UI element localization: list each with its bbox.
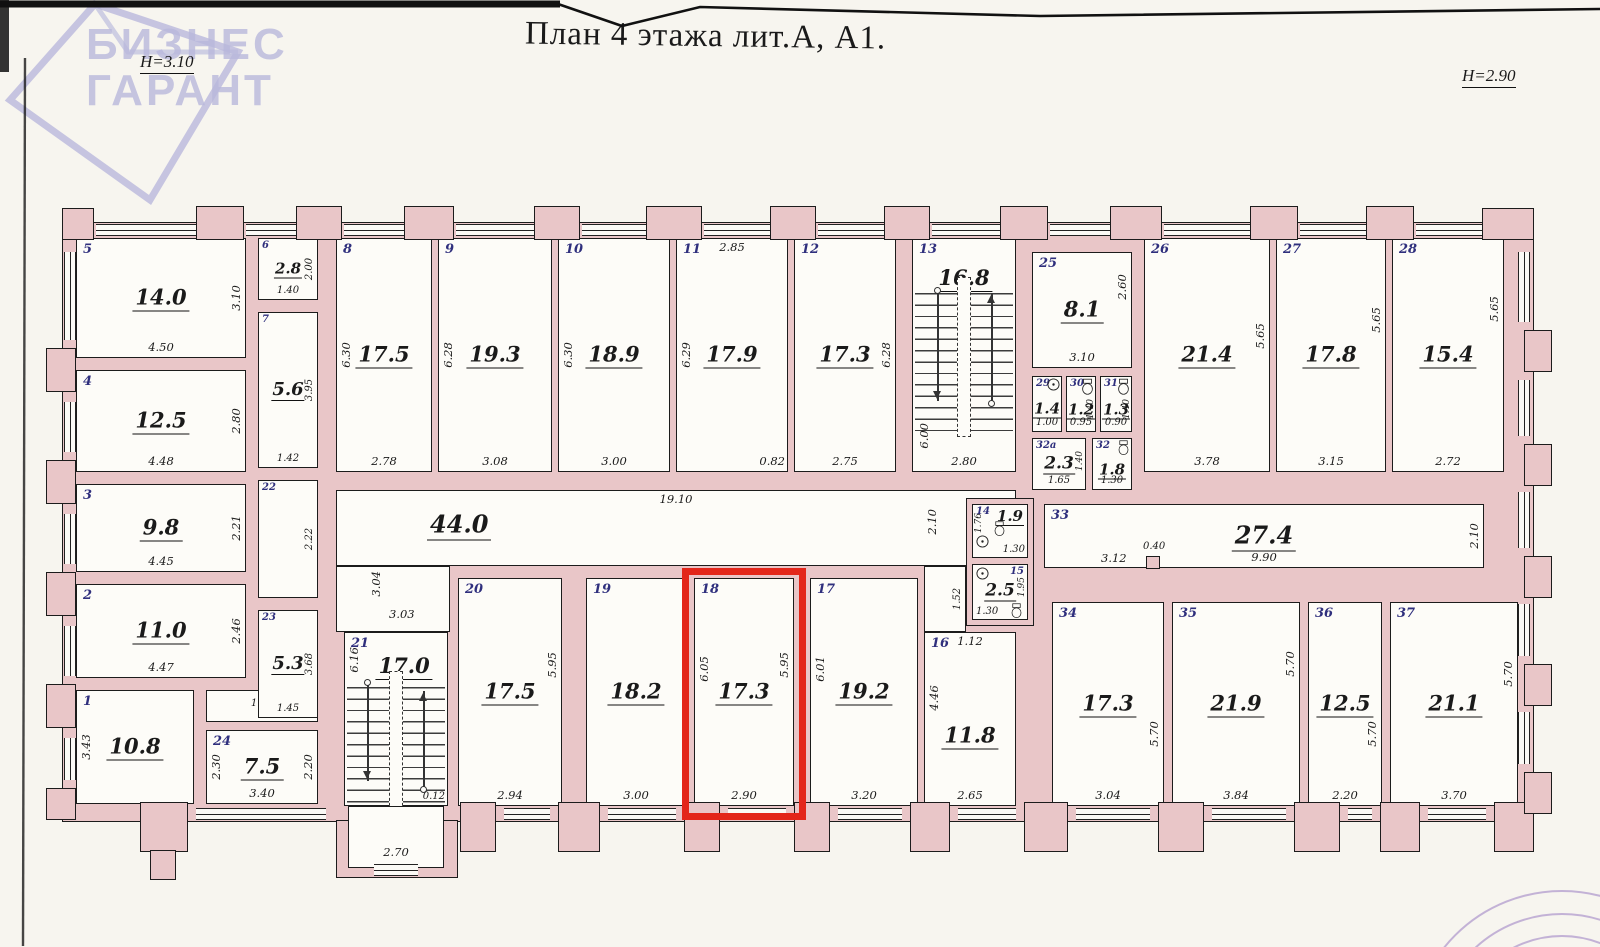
room-24-dim-right: 2.20 bbox=[301, 754, 315, 780]
room-24-dim-bottom: 3.40 bbox=[249, 786, 275, 800]
wall-pier bbox=[196, 206, 244, 240]
stair-rail bbox=[957, 277, 971, 437]
room-32-number: 32 bbox=[1096, 440, 1110, 451]
room-11-dim-bottom-right: 0.82 bbox=[759, 454, 785, 468]
room-19-area: 18.2 bbox=[607, 679, 664, 706]
room-2-area: 11.0 bbox=[132, 618, 189, 645]
room-24-dim-left: 2.30 bbox=[209, 754, 223, 780]
highlighted-room-18-outline bbox=[682, 568, 806, 820]
room-17-dim-bottom: 3.20 bbox=[851, 788, 877, 802]
stair-landing-dim: 2.70 bbox=[383, 845, 409, 859]
room-16-dim-bottom: 2.65 bbox=[957, 788, 983, 802]
wall-pier bbox=[1380, 802, 1420, 852]
room-8-dim-bottom: 2.78 bbox=[371, 454, 397, 468]
room-13-dim-left: 6.00 bbox=[917, 423, 931, 449]
room-11: 11 17.9 2.85 6.29 0.82 bbox=[676, 238, 788, 472]
room-11-area: 17.9 bbox=[703, 342, 760, 369]
corridor-33-dim-bottom: 9.90 bbox=[1251, 550, 1277, 564]
room-19-number: 19 bbox=[593, 582, 611, 597]
room-17-dim-left: 6.01 bbox=[813, 657, 827, 683]
wall-pier bbox=[296, 206, 342, 240]
stair-landing: 2.70 bbox=[348, 806, 444, 868]
toilet-icon bbox=[993, 521, 1006, 536]
window bbox=[504, 808, 550, 820]
wall-pier bbox=[534, 206, 580, 240]
window bbox=[582, 224, 646, 236]
room-8: 8 17.5 6.30 2.78 bbox=[336, 238, 432, 472]
corridor-44-dim-pass: 3.03 bbox=[389, 607, 415, 621]
room-12-dim-right: 6.28 bbox=[879, 342, 893, 368]
wall-pier bbox=[1294, 802, 1340, 852]
room-16-number: 16 bbox=[931, 636, 949, 651]
corridor-33-notch bbox=[1146, 556, 1160, 569]
room-23: 23 5.3 1.45 3.68 bbox=[258, 610, 318, 718]
room-23-area: 5.3 bbox=[271, 653, 304, 675]
room-20-dim-bottom: 2.94 bbox=[497, 788, 523, 802]
room-20-area: 17.5 bbox=[481, 679, 538, 706]
room-36: 36 12.5 5.70 2.20 bbox=[1308, 602, 1382, 806]
room-31-wc: 31 1.3 0.90 1.40 bbox=[1100, 376, 1132, 432]
room-17-number: 17 bbox=[817, 582, 835, 597]
room-14-dim-left: 1.76 bbox=[974, 513, 984, 533]
room-7-dim-right: 3.95 bbox=[304, 379, 315, 401]
window bbox=[818, 224, 884, 236]
corridor-44-area: 44.0 bbox=[427, 510, 491, 541]
wall-pier bbox=[884, 206, 930, 240]
room-10: 10 18.9 6.30 3.00 bbox=[558, 238, 670, 472]
sink-icon bbox=[976, 567, 989, 580]
room-9-number: 9 bbox=[445, 242, 454, 257]
window bbox=[1300, 224, 1366, 236]
wall-pier bbox=[46, 684, 76, 728]
room-8-number: 8 bbox=[343, 242, 352, 257]
room-21-stairwell: 21 17.0 6.16 0.12 bbox=[344, 632, 448, 806]
window bbox=[608, 808, 676, 820]
window bbox=[246, 224, 296, 236]
room-27-number: 27 bbox=[1283, 242, 1301, 257]
room-37-dim-bottom: 3.70 bbox=[1441, 788, 1467, 802]
wall-pier bbox=[1524, 330, 1552, 372]
room-17-area: 19.2 bbox=[835, 679, 892, 706]
wall-pier bbox=[1024, 802, 1068, 852]
wall-pier bbox=[1158, 802, 1204, 852]
room-26: 26 21.4 5.65 3.78 bbox=[1144, 238, 1270, 472]
plan-title: План 4 этажа лит.А, А1. bbox=[525, 15, 887, 57]
room-2-dim-bottom: 4.47 bbox=[148, 660, 174, 674]
window bbox=[1518, 604, 1530, 656]
room-2: 2 11.0 4.47 2.46 bbox=[76, 584, 246, 678]
toilet-icon bbox=[1010, 603, 1023, 618]
niche-passage: 1.52 bbox=[924, 566, 966, 632]
room-15-wc: 15 2.5 1.95 1.30 bbox=[972, 564, 1028, 620]
room-31-dim-right: 1.40 bbox=[1122, 399, 1132, 419]
room-24-area: 7.5 bbox=[241, 754, 284, 781]
room-2-dim-right: 2.46 bbox=[229, 618, 243, 644]
room-29-wc: 29 1.4 1.00 bbox=[1032, 376, 1062, 432]
corridor-33-dim-right: 2.10 bbox=[1467, 523, 1481, 549]
scanned-floor-plan-page: БИЗНЕС ГАРАНТ План 4 этажа лит.А, А1. Н=… bbox=[0, 0, 1600, 947]
wall-pier bbox=[646, 206, 702, 240]
room-32a-dim-bottom: 1.65 bbox=[1048, 475, 1070, 486]
room-5-area: 14.0 bbox=[132, 285, 189, 312]
stair-arrow-up bbox=[423, 691, 425, 787]
watermark-text-line2: ГАРАНТ bbox=[86, 68, 274, 114]
room-27-dim-right: 5.65 bbox=[1369, 307, 1383, 333]
wall-pier bbox=[46, 460, 76, 504]
room-5: 5 14.0 4.50 3.10 bbox=[76, 238, 246, 358]
room-28-dim-bottom: 2.72 bbox=[1435, 454, 1461, 468]
window bbox=[1518, 380, 1530, 436]
room-7-dim-bottom: 1.42 bbox=[277, 453, 299, 464]
room-32a-area: 2.3 bbox=[1043, 454, 1075, 475]
wall-pier bbox=[1250, 206, 1298, 240]
room-1-number: 1 bbox=[83, 694, 92, 709]
room-1-area: 10.8 bbox=[106, 734, 163, 761]
window bbox=[344, 224, 404, 236]
room-5-dim-right: 3.10 bbox=[229, 285, 243, 311]
window bbox=[1428, 808, 1486, 820]
window bbox=[1518, 492, 1530, 548]
room-34-number: 34 bbox=[1059, 606, 1077, 621]
wall-pier bbox=[46, 788, 76, 820]
wall-pier bbox=[770, 206, 816, 240]
corridor-33-dim-notch: 0.40 bbox=[1143, 541, 1165, 552]
room-15-area: 2.5 bbox=[984, 580, 1016, 601]
corridor-44: 44.0 19.10 2.10 bbox=[336, 490, 1016, 566]
wall-pier bbox=[1482, 208, 1534, 240]
room-7-number: 7 bbox=[262, 314, 269, 325]
room-23-dim-bottom: 1.45 bbox=[277, 703, 299, 714]
window bbox=[838, 808, 902, 820]
room-34-dim-right: 5.70 bbox=[1147, 721, 1161, 747]
stair-arrow-down bbox=[937, 293, 939, 401]
wall-pier bbox=[558, 802, 600, 852]
room-20-dim-right: 5.95 bbox=[545, 652, 559, 678]
window bbox=[456, 224, 534, 236]
window bbox=[1076, 808, 1150, 820]
room-14-wc: 14 1.9 1.76 1.30 bbox=[972, 504, 1028, 558]
room-6: 6 2.8 1.40 2.00 bbox=[258, 238, 318, 300]
room-16-dim-top: 1.12 bbox=[957, 634, 983, 648]
wall-pier bbox=[1524, 772, 1552, 814]
wall-pier bbox=[150, 850, 176, 880]
room-24-number: 24 bbox=[213, 734, 231, 749]
room-4-dim-bottom: 4.48 bbox=[148, 454, 174, 468]
window bbox=[64, 626, 76, 676]
niche-passage-dim: 1.52 bbox=[952, 588, 963, 610]
room-3-area: 9.8 bbox=[140, 515, 183, 542]
room-23-dim-right: 3.68 bbox=[304, 653, 315, 675]
room-12-dim-bottom: 2.75 bbox=[832, 454, 858, 468]
room-37: 37 21.1 5.70 3.70 bbox=[1390, 602, 1518, 806]
room-32a-dim-right: 1.40 bbox=[1075, 451, 1085, 471]
stair-arrow-down bbox=[367, 685, 369, 781]
room-34-area: 17.3 bbox=[1079, 691, 1136, 718]
room-15-dim-right: 1.95 bbox=[1017, 577, 1027, 597]
room-32-dim-bottom: 1.30 bbox=[1101, 475, 1123, 486]
room-3-dim-bottom: 4.45 bbox=[148, 554, 174, 568]
room-16-dim-left: 4.46 bbox=[927, 686, 941, 712]
room-13-stairwell: 13 16.8 6.00 2.80 bbox=[912, 238, 1016, 472]
room-22-dim-right: 2.22 bbox=[304, 528, 315, 550]
window bbox=[64, 738, 76, 780]
wall-pier bbox=[140, 802, 188, 852]
corridor-33-number: 33 bbox=[1051, 508, 1069, 523]
window bbox=[932, 224, 1000, 236]
room-19-dim-bottom: 3.00 bbox=[623, 788, 649, 802]
room-14-dim-bottom: 1.30 bbox=[1003, 544, 1025, 555]
room-19: 19 18.2 3.00 bbox=[586, 578, 686, 806]
toilet-icon bbox=[1081, 378, 1094, 395]
room-4-area: 12.5 bbox=[132, 408, 189, 435]
room-37-area: 21.1 bbox=[1425, 691, 1482, 718]
room-28-dim-right: 5.65 bbox=[1487, 296, 1501, 322]
room-24: 24 7.5 2.30 3.40 2.20 bbox=[206, 730, 318, 804]
room-9: 9 19.3 6.28 3.08 bbox=[438, 238, 552, 472]
room-11-dim-left: 6.29 bbox=[679, 342, 693, 368]
wall-pier bbox=[1366, 206, 1414, 240]
room-26-number: 26 bbox=[1151, 242, 1169, 257]
room-28-area: 15.4 bbox=[1419, 342, 1476, 369]
sink-icon bbox=[1047, 378, 1060, 391]
toilet-icon bbox=[1117, 378, 1130, 395]
room-31-number: 31 bbox=[1104, 378, 1118, 389]
corridor-44-dim-v: 3.04 bbox=[369, 571, 383, 597]
window bbox=[1416, 224, 1482, 236]
window bbox=[1518, 712, 1530, 764]
window bbox=[64, 252, 76, 340]
room-11-dim-top: 2.85 bbox=[719, 240, 745, 254]
room-26-dim-right: 5.65 bbox=[1253, 324, 1267, 350]
wall-pier bbox=[62, 208, 94, 240]
room-25-area: 8.1 bbox=[1061, 297, 1104, 324]
room-11-number: 11 bbox=[683, 242, 701, 257]
room-3-number: 3 bbox=[83, 488, 92, 503]
room-5-dim-bottom: 4.50 bbox=[148, 340, 174, 354]
corridor-33: 33 27.4 3.12 0.40 9.90 2.10 bbox=[1044, 504, 1484, 568]
corridor-44-dim-length: 19.10 bbox=[660, 492, 693, 506]
room-12-area: 17.3 bbox=[816, 342, 873, 369]
room-15-dim-bottom: 1.30 bbox=[976, 606, 998, 617]
corridor-44-extension: 3.04 3.03 bbox=[336, 566, 450, 632]
room-32a: 32а 2.3 1.65 1.40 bbox=[1032, 438, 1086, 490]
room-35-dim-bottom: 3.84 bbox=[1223, 788, 1249, 802]
window bbox=[64, 514, 76, 564]
window bbox=[1050, 224, 1110, 236]
room-1-dim-left: 3.43 bbox=[79, 734, 93, 760]
room-6-dim-right: 2.00 bbox=[304, 258, 315, 280]
room-7: 7 5.6 1.42 3.95 bbox=[258, 312, 318, 468]
wall-pier bbox=[460, 802, 496, 852]
room-36-area: 12.5 bbox=[1316, 691, 1373, 718]
room-4-dim-right: 2.80 bbox=[229, 408, 243, 434]
room-15-number: 15 bbox=[1010, 566, 1024, 577]
room-21-dim-left: 6.16 bbox=[347, 647, 361, 673]
room-10-number: 10 bbox=[565, 242, 583, 257]
window bbox=[1164, 224, 1250, 236]
wall-pier bbox=[1524, 664, 1552, 706]
window bbox=[96, 224, 196, 236]
corridor-33-area: 27.4 bbox=[1232, 521, 1296, 552]
wall-pier bbox=[1524, 556, 1552, 598]
room-2-number: 2 bbox=[83, 588, 92, 603]
room-25-dim-right: 2.60 bbox=[1115, 274, 1129, 300]
wall-pier bbox=[46, 348, 76, 392]
ceiling-height-right: Н=2.90 bbox=[1462, 66, 1516, 88]
room-30-dim-right: 1.40 bbox=[1086, 399, 1096, 419]
room-23-number: 23 bbox=[262, 612, 276, 623]
ceiling-height-left: Н=3.10 bbox=[140, 52, 194, 74]
wall-pier bbox=[910, 802, 950, 852]
room-16: 16 11.8 1.12 4.46 2.65 bbox=[924, 632, 1016, 806]
room-35-dim-right: 5.70 bbox=[1283, 651, 1297, 677]
room-27-dim-bottom: 3.15 bbox=[1318, 454, 1344, 468]
room-4-number: 4 bbox=[83, 374, 92, 389]
room-37-number: 37 bbox=[1397, 606, 1415, 621]
room-8-area: 17.5 bbox=[355, 342, 412, 369]
room-27-area: 17.8 bbox=[1302, 342, 1359, 369]
room-32a-number: 32а bbox=[1036, 440, 1056, 451]
wall-pier bbox=[1524, 444, 1552, 486]
window bbox=[1348, 808, 1372, 820]
room-21-dim-step: 0.12 bbox=[423, 791, 445, 802]
room-25-dim-bottom: 3.10 bbox=[1069, 350, 1095, 364]
room-6-dim-bottom: 1.40 bbox=[277, 285, 299, 296]
corridor-44-dim-niche: 2.10 bbox=[925, 509, 939, 535]
room-32-wc: 32 1.8 1.30 bbox=[1092, 438, 1132, 490]
room-22: 22 2.22 bbox=[258, 480, 318, 598]
room-35-area: 21.9 bbox=[1207, 691, 1264, 718]
room-35: 35 21.9 5.70 3.84 bbox=[1172, 602, 1300, 806]
room-10-dim-bottom: 3.00 bbox=[601, 454, 627, 468]
room-3: 3 9.8 4.45 2.21 bbox=[76, 484, 246, 572]
room-36-dim-right: 5.70 bbox=[1365, 721, 1379, 747]
room-4: 4 12.5 4.48 2.80 bbox=[76, 370, 246, 472]
room-27: 27 17.8 5.65 3.15 bbox=[1276, 238, 1386, 472]
room-36-number: 36 bbox=[1315, 606, 1333, 621]
window bbox=[958, 808, 1016, 820]
room-26-dim-bottom: 3.78 bbox=[1194, 454, 1220, 468]
room-25-number: 25 bbox=[1039, 256, 1057, 271]
room-21-area: 17.0 bbox=[376, 653, 433, 680]
stair-rail bbox=[389, 671, 403, 811]
room-12: 12 17.3 6.28 2.75 bbox=[794, 238, 896, 472]
window bbox=[1212, 808, 1286, 820]
room-7-area: 5.6 bbox=[271, 379, 304, 401]
stair-arrow-up bbox=[991, 293, 993, 401]
room-35-number: 35 bbox=[1179, 606, 1197, 621]
room-13-number: 13 bbox=[919, 242, 937, 257]
room-20-number: 20 bbox=[465, 582, 483, 597]
room-3-dim-right: 2.21 bbox=[229, 515, 243, 541]
window bbox=[1518, 252, 1530, 322]
room-10-area: 18.9 bbox=[585, 342, 642, 369]
window bbox=[374, 864, 418, 876]
room-12-number: 12 bbox=[801, 242, 819, 257]
room-36-dim-bottom: 2.20 bbox=[1332, 788, 1358, 802]
room-10-dim-left: 6.30 bbox=[561, 342, 575, 368]
window bbox=[64, 402, 76, 452]
wall-pier bbox=[46, 572, 76, 616]
window bbox=[704, 224, 770, 236]
room-17: 17 19.2 6.01 3.20 bbox=[810, 578, 918, 806]
room-28-number: 28 bbox=[1399, 242, 1417, 257]
room-29-dim-bottom: 1.00 bbox=[1036, 417, 1058, 428]
room-8-dim-left: 6.30 bbox=[339, 342, 353, 368]
room-20: 20 17.5 5.95 2.94 bbox=[458, 578, 562, 806]
corridor-33-dim-left: 3.12 bbox=[1101, 551, 1127, 565]
room-34-dim-bottom: 3.04 bbox=[1095, 788, 1121, 802]
sink-icon bbox=[976, 535, 989, 548]
room-9-dim-bottom: 3.08 bbox=[482, 454, 508, 468]
wall-pier bbox=[1000, 206, 1048, 240]
wall-pier bbox=[1110, 206, 1162, 240]
room-6-number: 6 bbox=[262, 240, 269, 251]
room-34: 34 17.3 5.70 3.04 bbox=[1052, 602, 1164, 806]
room-9-dim-left: 6.28 bbox=[441, 342, 455, 368]
room-5-number: 5 bbox=[83, 242, 92, 257]
room-6-area: 2.8 bbox=[274, 260, 302, 279]
room-13-dim-bottom: 2.80 bbox=[951, 454, 977, 468]
room-1: 1 10.8 3.43 bbox=[76, 690, 194, 804]
room-26-area: 21.4 bbox=[1178, 342, 1235, 369]
room-16-area: 11.8 bbox=[941, 723, 998, 750]
room-22-number: 22 bbox=[262, 482, 276, 493]
toilet-icon bbox=[1117, 440, 1130, 455]
room-30-wc: 30 1.2 0.95 1.40 bbox=[1066, 376, 1096, 432]
window bbox=[196, 808, 326, 820]
room-9-area: 19.3 bbox=[466, 342, 523, 369]
wall-pier bbox=[404, 206, 454, 240]
room-37-dim-right: 5.70 bbox=[1501, 661, 1515, 687]
room-25: 25 8.1 3.10 2.60 bbox=[1032, 252, 1132, 368]
room-28: 28 15.4 5.65 2.72 bbox=[1392, 238, 1504, 472]
